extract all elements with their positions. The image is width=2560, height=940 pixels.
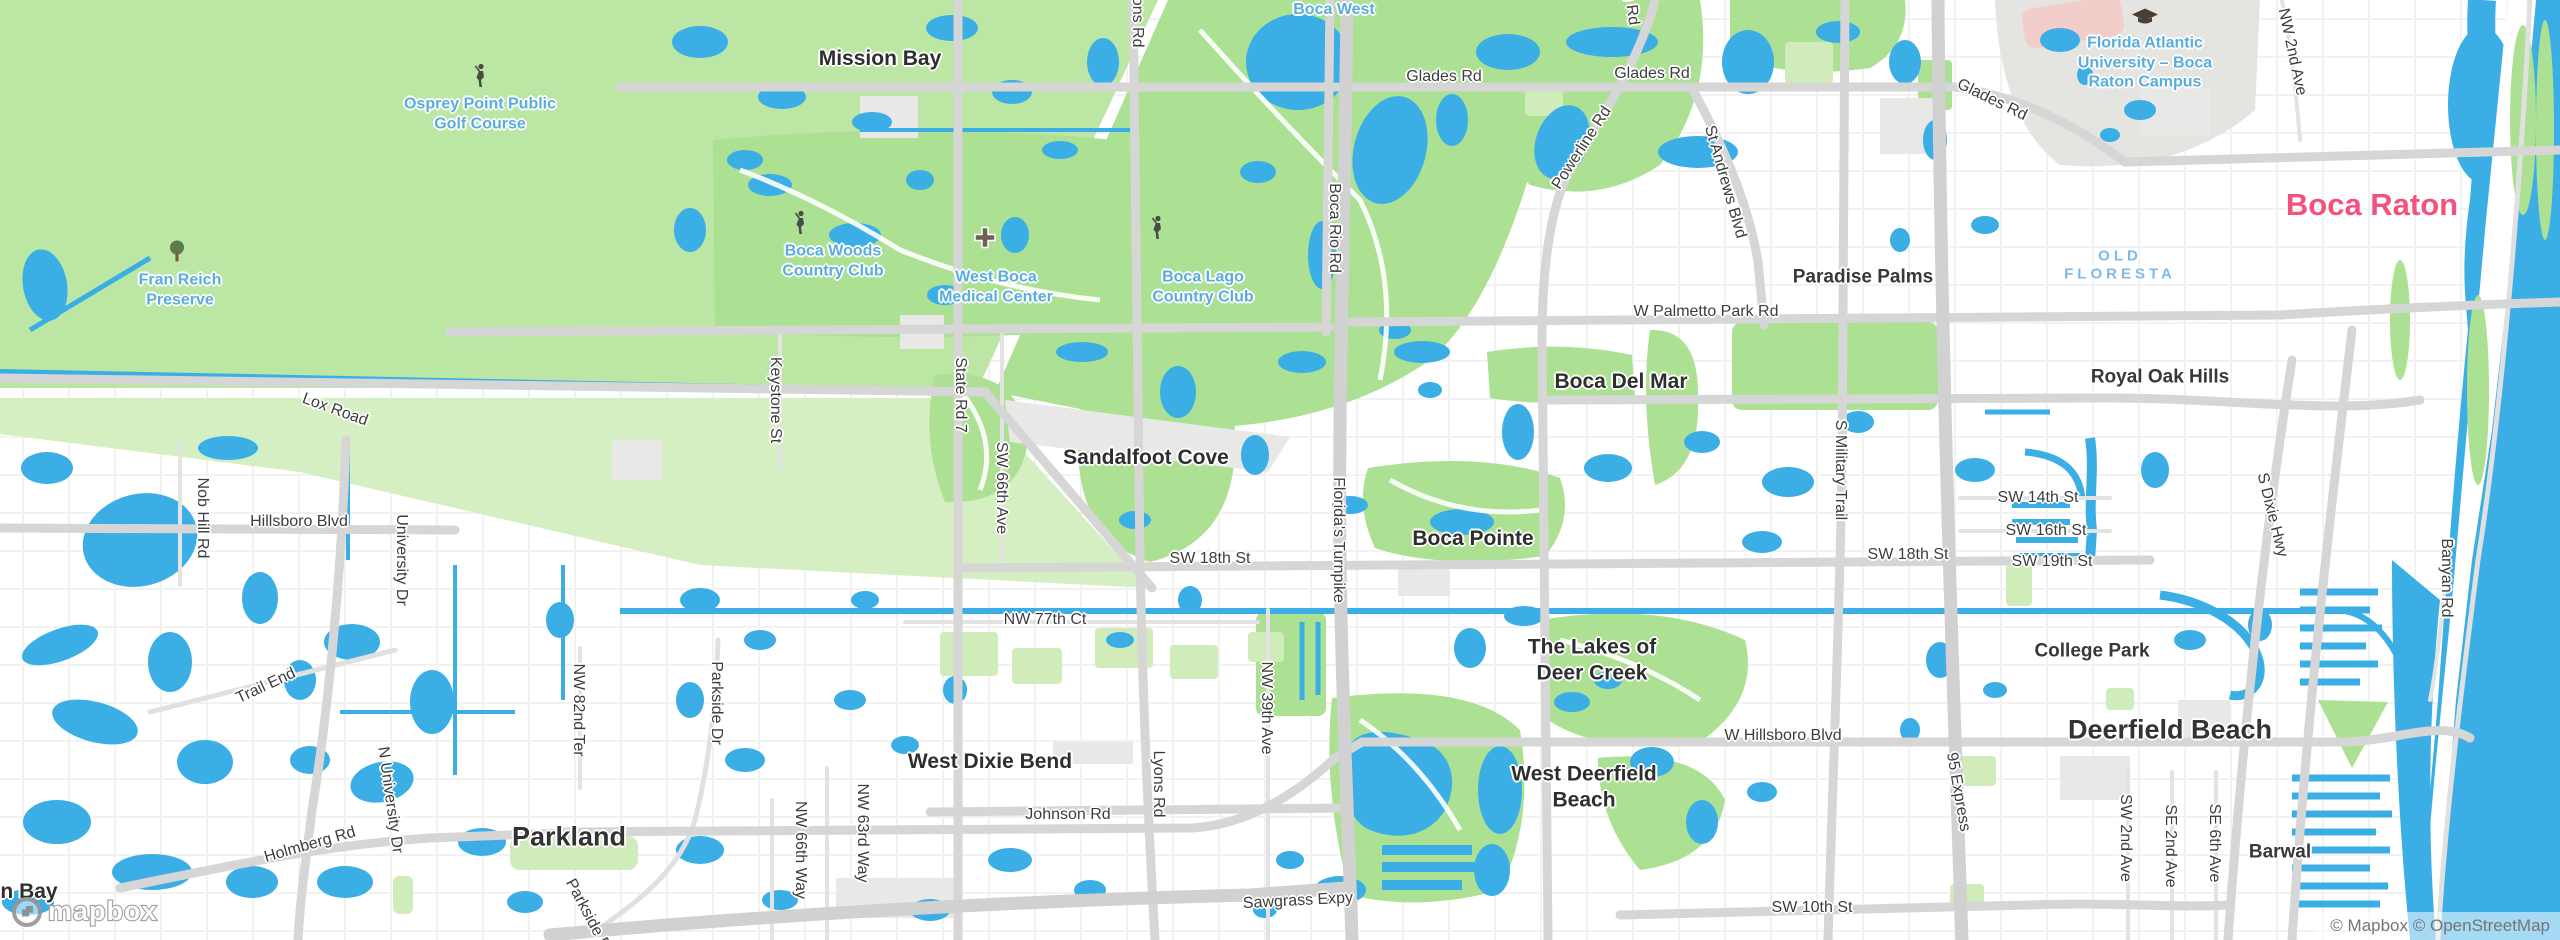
road-label: NW 82nd Ter <box>568 663 588 756</box>
road-label: SW 19th St <box>2012 552 2093 572</box>
road-label: Powerline Rd <box>1548 103 1616 193</box>
place-label: Paradise Palms <box>1793 265 1933 288</box>
road-label: SE 2nd Ave <box>2160 804 2180 887</box>
road-label: SW 18th St <box>1868 545 1949 565</box>
road-label: Keystone St <box>765 357 785 443</box>
road-label: NW 77th Ct <box>1004 610 1087 630</box>
road-label: SE 6th Ave <box>2204 804 2224 883</box>
road-label: Lyons Rd <box>1148 751 1168 818</box>
place-label: Parkland <box>512 821 626 854</box>
place-label: Boca Lago Country Club <box>1152 267 1253 306</box>
place-label: OLD FLORESTA <box>2064 248 2176 285</box>
road-label: Boca Rio Rd <box>1324 183 1344 273</box>
road-label: S Dixie Hwy <box>2252 471 2292 559</box>
place-label: Fran Reich Preserve <box>139 270 222 309</box>
place-label: Barwal <box>2249 840 2311 863</box>
place-label: Boca Del Mar <box>1554 369 1687 395</box>
road-label: NW 63rd Way <box>852 784 872 883</box>
road-label: University Dr <box>391 514 411 606</box>
place-label: West Deerfield Beach <box>1511 761 1657 812</box>
road-label: Sawgrass Expy <box>1242 888 1353 913</box>
road-label: SW 66th Ave <box>991 442 1011 534</box>
golfer-icon <box>789 210 811 241</box>
road-label: State Rd 7 <box>950 357 970 433</box>
place-label: Boca Woods Country Club <box>782 241 883 280</box>
road-label: NW 2nd Ave <box>2273 7 2311 98</box>
place-label: Boca Raton <box>2286 186 2458 224</box>
road-label: Lyons Rd <box>1127 0 1147 48</box>
mapbox-logo[interactable]: mapbox <box>12 896 158 927</box>
road-label: SW 10th St <box>1772 898 1853 918</box>
place-label: Florida Atlantic University – Boca Raton… <box>2078 34 2212 93</box>
labels-layer: Boca RatonDeerfield BeachParklandMission… <box>0 0 2560 940</box>
hospital-icon <box>973 226 997 255</box>
road-label: SW 2nd Ave <box>2115 794 2135 882</box>
place-label: Deerfield Beach <box>2068 714 2272 747</box>
road-label: Parkside Dr <box>561 876 617 940</box>
place-label: Boca Pointe <box>1412 526 1533 552</box>
map-root[interactable]: Boca RatonDeerfield BeachParklandMission… <box>0 0 2560 940</box>
graduation-cap-icon <box>2131 8 2159 33</box>
road-label: NW 66th Way <box>790 801 810 899</box>
place-label: Boca West <box>1293 0 1375 20</box>
attribution-text: © Mapbox © OpenStreetMap <box>2330 916 2550 936</box>
road-label: Hillsboro Blvd <box>250 512 348 532</box>
road-label: Jog Rd <box>1617 0 1643 26</box>
road-label: Florida's Turnpike <box>1328 477 1348 603</box>
road-label: St Andrews Blvd <box>1700 123 1751 240</box>
place-label: Mission Bay <box>819 46 942 72</box>
attribution[interactable]: © Mapbox © OpenStreetMap <box>2316 912 2560 940</box>
road-label: 95 Express <box>1941 751 1974 833</box>
place-label: Sandalfoot Cove <box>1063 445 1229 471</box>
mapbox-logo-icon <box>12 897 42 927</box>
road-label: SW 16th St <box>2006 521 2087 541</box>
road-label: Trail End <box>233 664 299 708</box>
place-label: Royal Oak Hills <box>2091 365 2229 388</box>
road-label: Holmberg Rd <box>262 823 358 868</box>
place-label: The Lakes of Deer Creek <box>1528 634 1656 685</box>
road-label: Johnson Rd <box>1025 805 1110 825</box>
road-label: Nob Hill Rd <box>192 478 212 559</box>
road-label: W Palmetto Park Rd <box>1634 302 1779 322</box>
place-label: Osprey Point Public Golf Course <box>404 94 556 133</box>
road-label: Banyan Rd <box>2436 538 2456 617</box>
road-label: N University Dr <box>373 745 407 854</box>
road-label: Glades Rd <box>1406 67 1482 87</box>
mapbox-logo-text: mapbox <box>48 896 158 927</box>
place-label: West Boca Medical Center <box>939 267 1053 306</box>
tree-icon <box>167 240 187 269</box>
place-label: West Dixie Bend <box>908 749 1072 775</box>
road-label: SW 14th St <box>1998 488 2079 508</box>
road-label: NW 39th Ave <box>1256 661 1276 754</box>
road-label: W Hillsboro Blvd <box>1724 726 1841 746</box>
road-label: S Military Trail <box>1830 420 1850 520</box>
road-label: Glades Rd <box>1954 75 2030 126</box>
road-label: Lox Road <box>299 389 370 431</box>
golfer-icon <box>1146 215 1168 246</box>
road-label: Glades Rd <box>1614 64 1690 84</box>
place-label: College Park <box>2034 639 2149 662</box>
road-label: SW 18th St <box>1170 549 1251 569</box>
golfer-icon <box>469 63 491 94</box>
road-label: Parkside Dr <box>706 661 726 745</box>
